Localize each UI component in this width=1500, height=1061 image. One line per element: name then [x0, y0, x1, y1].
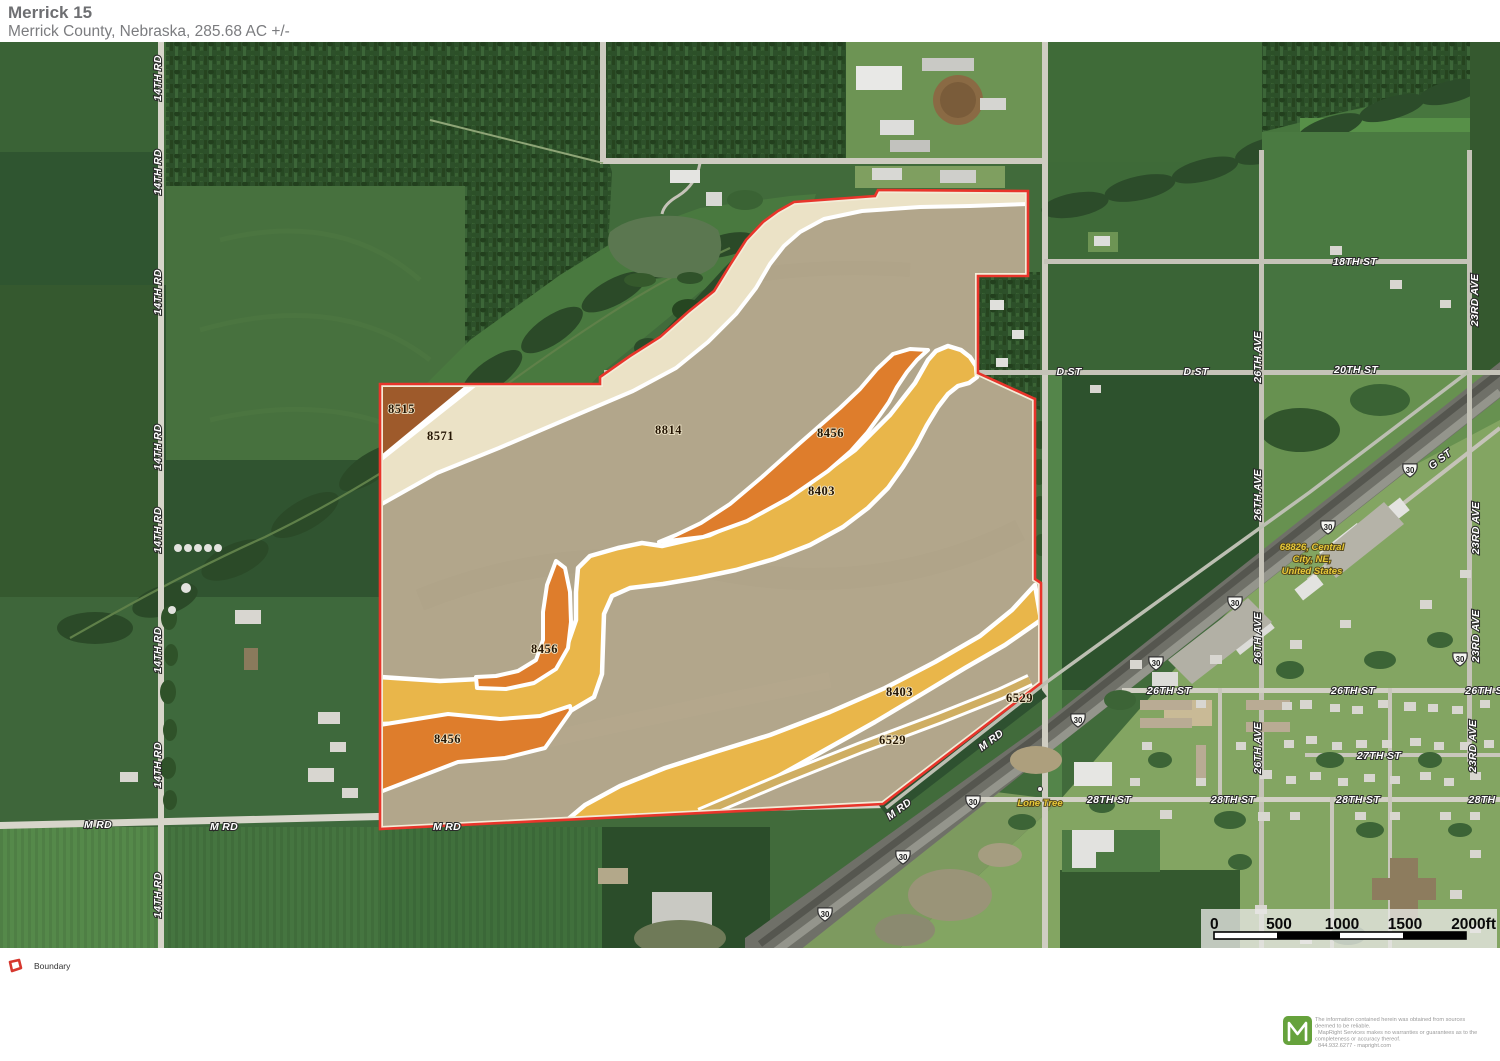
svg-text:844.932.6277 - mapright.com: 844.932.6277 - mapright.com — [1318, 1043, 1391, 1049]
svg-text:14TH RD: 14TH RD — [152, 424, 164, 470]
svg-text:M RD: M RD — [210, 821, 238, 833]
svg-text:30: 30 — [899, 853, 908, 862]
svg-text:30: 30 — [1456, 655, 1465, 664]
svg-text:30: 30 — [1074, 716, 1083, 725]
svg-text:14TH RD: 14TH RD — [152, 55, 164, 101]
svg-text:30: 30 — [1406, 466, 1415, 475]
svg-text:30: 30 — [821, 910, 830, 919]
svg-text:D ST: D ST — [1183, 366, 1209, 378]
svg-text:14TH RD: 14TH RD — [152, 269, 164, 315]
svg-text:14TH RD: 14TH RD — [152, 872, 164, 918]
svg-text:20TH ST: 20TH ST — [1333, 364, 1379, 376]
svg-text:23RD AVE: 23RD AVE — [1467, 719, 1479, 773]
svg-text:23RD AVE: 23RD AVE — [1469, 273, 1481, 327]
svg-text:26TH ST: 26TH ST — [1146, 685, 1192, 697]
svg-text:8456: 8456 — [434, 732, 461, 746]
svg-text:deemed to be reliable.: deemed to be reliable. — [1315, 1024, 1371, 1030]
svg-text:30: 30 — [1152, 659, 1161, 668]
svg-text:Boundary: Boundary — [34, 961, 71, 971]
svg-text:8456: 8456 — [531, 642, 558, 656]
svg-text:City, NE,: City, NE, — [1293, 554, 1332, 565]
svg-text:14TH RD: 14TH RD — [152, 507, 164, 553]
svg-text:26TH AVE: 26TH AVE — [1252, 612, 1264, 665]
svg-text:Merrick 15: Merrick 15 — [8, 3, 92, 22]
svg-text:26TH AVE: 26TH AVE — [1252, 469, 1264, 522]
svg-text:6529: 6529 — [1006, 691, 1033, 705]
svg-text:Merrick County, Nebraska, 285.: Merrick County, Nebraska, 285.68 AC +/- — [8, 23, 290, 40]
svg-text:68826, Central: 68826, Central — [1280, 542, 1345, 553]
svg-text:completeness or accuracy there: completeness or accuracy thereof. — [1315, 1037, 1401, 1043]
svg-text:28TH ST: 28TH ST — [1335, 794, 1381, 806]
svg-text:28TH: 28TH — [1468, 794, 1496, 806]
svg-text:18TH ST: 18TH ST — [1333, 256, 1378, 268]
svg-text:26TH S: 26TH S — [1464, 685, 1500, 697]
svg-text:1500: 1500 — [1388, 916, 1422, 933]
svg-text:M RD: M RD — [433, 821, 461, 833]
svg-text:30: 30 — [1231, 599, 1240, 608]
svg-text:23RD AVE: 23RD AVE — [1470, 501, 1482, 555]
svg-text:8515: 8515 — [388, 402, 415, 416]
svg-text:The information contained here: The information contained herein was obt… — [1315, 1017, 1465, 1023]
svg-text:8571: 8571 — [427, 429, 454, 443]
svg-text:28TH ST: 28TH ST — [1210, 794, 1256, 806]
svg-text:M RD: M RD — [84, 819, 112, 831]
svg-text:26TH ST: 26TH ST — [1330, 685, 1376, 697]
svg-text:6529: 6529 — [879, 733, 906, 747]
svg-text:8456: 8456 — [817, 426, 844, 440]
svg-text:26TH AVE: 26TH AVE — [1252, 331, 1264, 384]
svg-text:14TH RD: 14TH RD — [152, 742, 164, 788]
svg-text:28TH ST: 28TH ST — [1086, 794, 1132, 806]
svg-text:D ST: D ST — [1056, 366, 1082, 378]
svg-text:26TH AVE: 26TH AVE — [1252, 722, 1264, 775]
svg-text:500: 500 — [1266, 916, 1292, 933]
svg-text:United States: United States — [1282, 566, 1343, 577]
svg-text:0: 0 — [1210, 916, 1219, 933]
svg-text:14TH RD: 14TH RD — [152, 627, 164, 673]
svg-text:23RD AVE: 23RD AVE — [1470, 609, 1482, 663]
svg-text:8403: 8403 — [886, 685, 913, 699]
svg-text:27TH ST: 27TH ST — [1356, 750, 1402, 762]
svg-text:30: 30 — [969, 798, 978, 807]
svg-text:2000ft: 2000ft — [1451, 916, 1496, 933]
svg-text:8814: 8814 — [655, 423, 682, 437]
svg-text:1000: 1000 — [1325, 916, 1359, 933]
svg-text:14TH RD: 14TH RD — [152, 149, 164, 195]
svg-text:Lone Tree: Lone Tree — [1017, 798, 1063, 809]
svg-text:30: 30 — [1324, 523, 1333, 532]
svg-text:MapRight Services makes no war: MapRight Services makes no warranties or… — [1318, 1030, 1477, 1036]
svg-text:8403: 8403 — [808, 484, 835, 498]
